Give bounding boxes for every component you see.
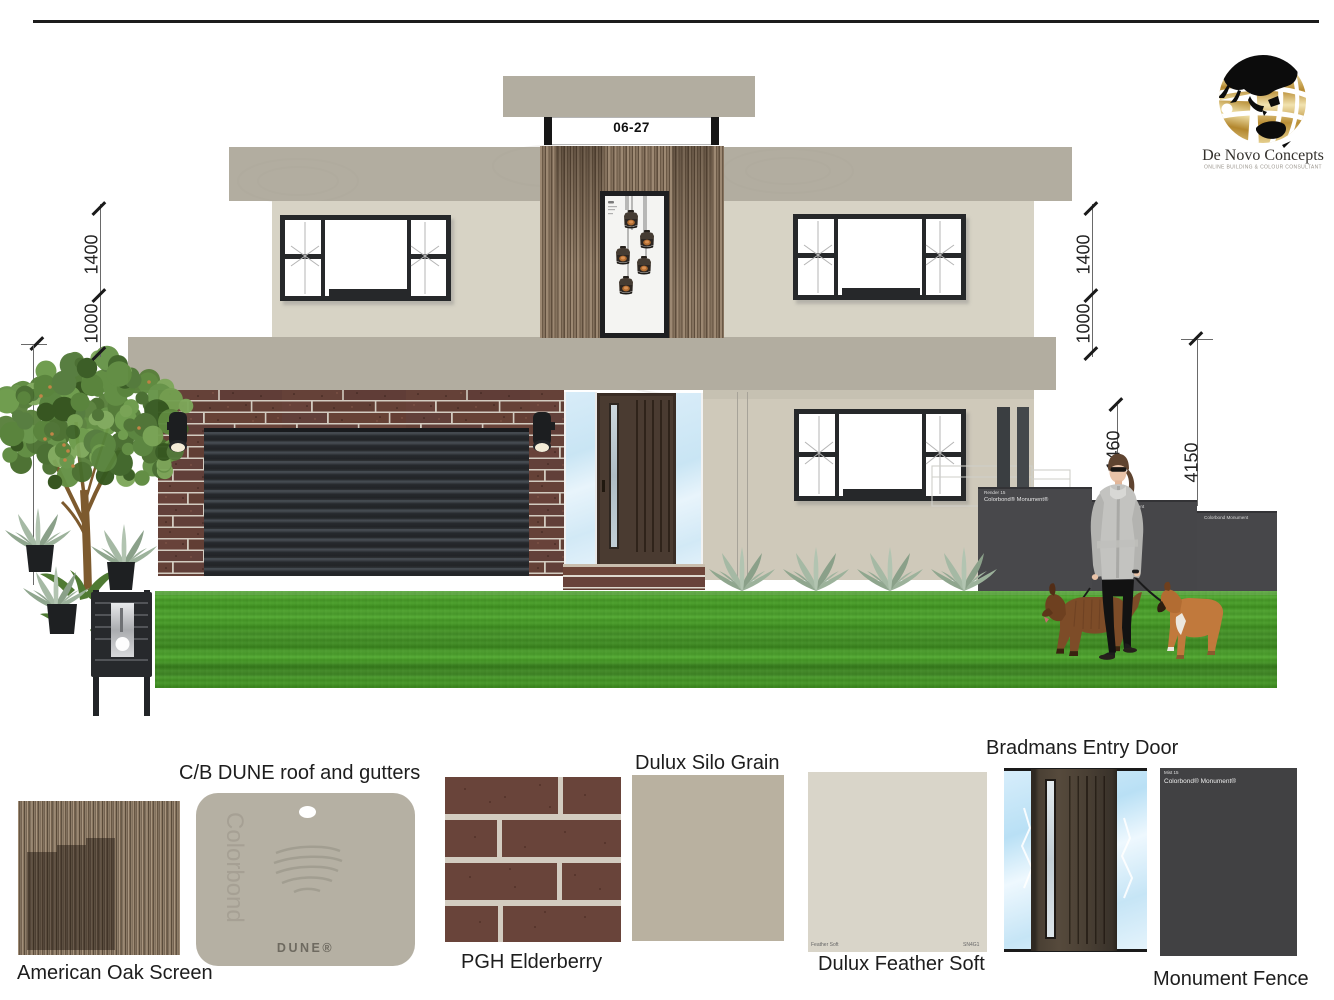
svg-text:ONLINE BUILDING & COLOUR CONSU: ONLINE BUILDING & COLOUR CONSULTANT: [1204, 165, 1322, 171]
svg-text:De Novo Concepts: De Novo Concepts: [1202, 147, 1324, 164]
